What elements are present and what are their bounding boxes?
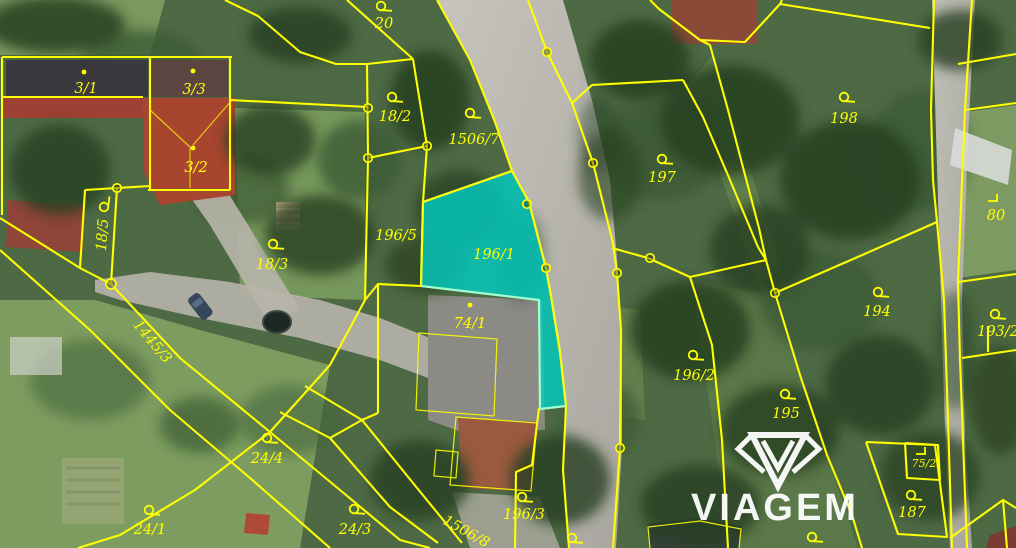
cadastral-map[interactable]: 203/13/33/218/21506/71971988018/518/3196… (0, 0, 1016, 548)
parcel-number: 196/3 (503, 507, 545, 523)
pool (263, 311, 291, 333)
parcel-number: 198 (830, 111, 858, 127)
parcel-number: 18/2 (379, 109, 412, 125)
parcel-number: 24/1 (133, 522, 167, 538)
parcel-label-196-1: 196/1 (473, 247, 515, 263)
parcel-number: 24/4 (250, 451, 284, 467)
parcel-number: 20 (374, 16, 393, 32)
parcel-number: 3/1 (74, 81, 97, 97)
parcel-number: 74/1 (454, 316, 487, 332)
parcel-number: 1506/7 (448, 132, 500, 148)
dot-symbol (82, 70, 87, 75)
dot-symbol (191, 69, 196, 74)
parcel-number: 196/2 (673, 368, 715, 384)
parcel-number: 196/1 (473, 247, 515, 263)
parcel-number: 194 (863, 304, 891, 320)
parcel-number: 24/3 (338, 522, 372, 538)
parcel-number: 80 (987, 208, 1005, 224)
dot-symbol (191, 146, 196, 151)
parcel-number: 3/2 (184, 160, 207, 176)
parcel-number: 75/2 (912, 457, 937, 470)
parcel-label-196-5: 196/5 (375, 228, 417, 244)
parcel-number: 18/5 (94, 218, 112, 252)
parcel-number: 193/2 (977, 324, 1016, 340)
parcel-number: 196/5 (375, 228, 417, 244)
parcel-number: 3/3 (182, 82, 205, 98)
dot-symbol (468, 303, 473, 308)
parcel-number: 195 (772, 406, 800, 422)
parcel-number: 187 (898, 505, 926, 521)
parcel-number: 197 (648, 170, 676, 186)
map-canvas[interactable]: 203/13/33/218/21506/71971988018/518/3196… (0, 0, 1016, 548)
watermark-brand: VIAGEM (691, 487, 859, 529)
parcel-number: 18/3 (256, 257, 289, 273)
